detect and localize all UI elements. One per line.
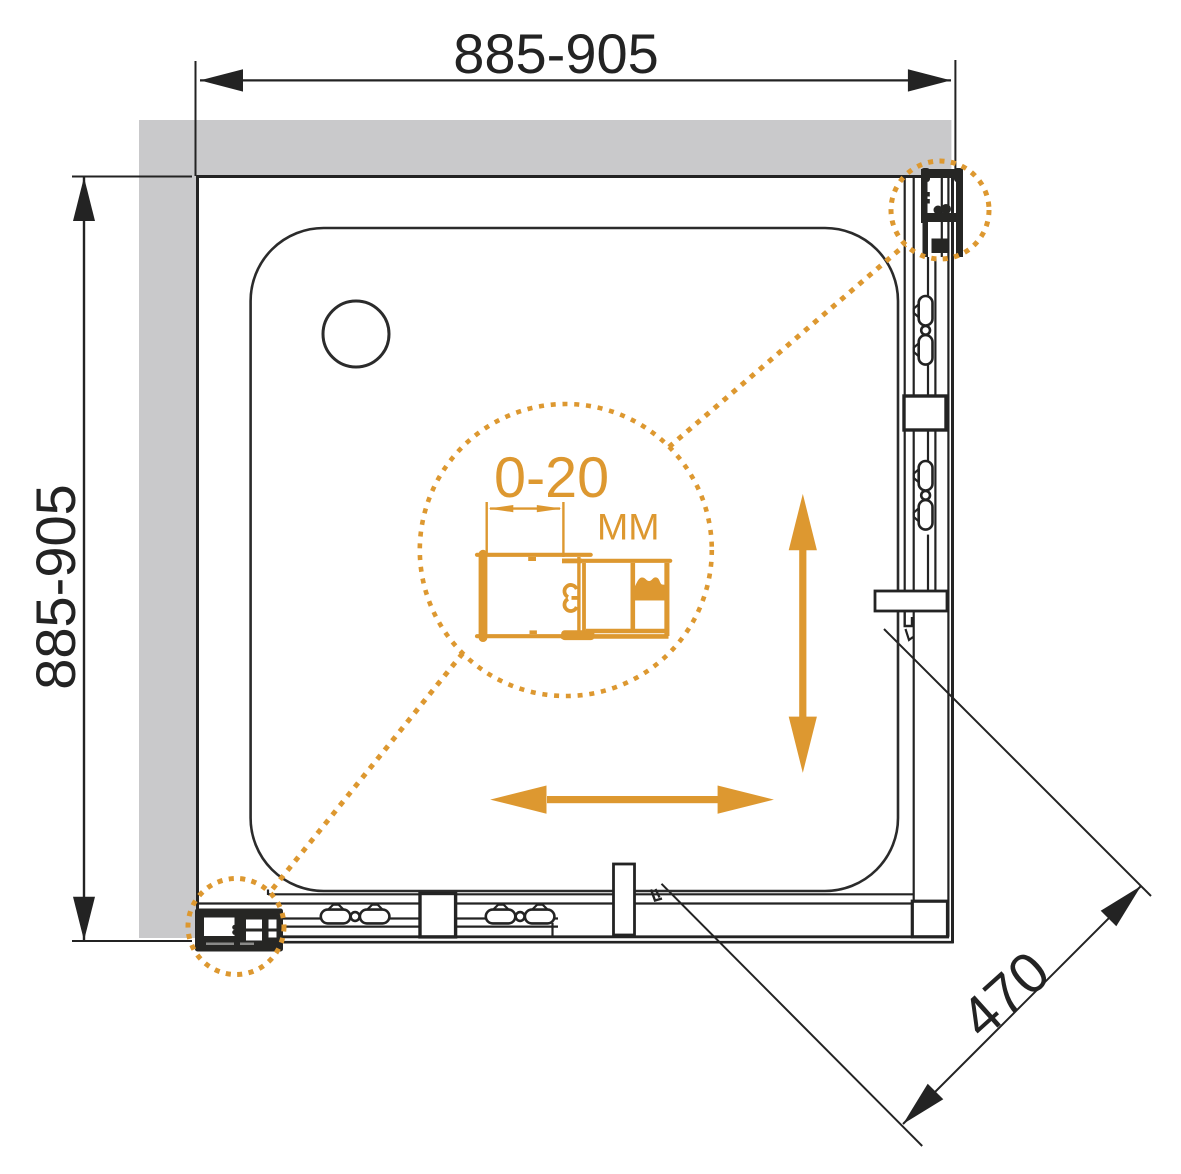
svg-text:885-905: 885-905 — [453, 22, 659, 85]
svg-text:885-905: 885-905 — [24, 484, 87, 690]
svg-text:470: 470 — [949, 939, 1063, 1050]
svg-text:0-20: 0-20 — [494, 446, 609, 510]
svg-text:MM: MM — [597, 506, 659, 548]
